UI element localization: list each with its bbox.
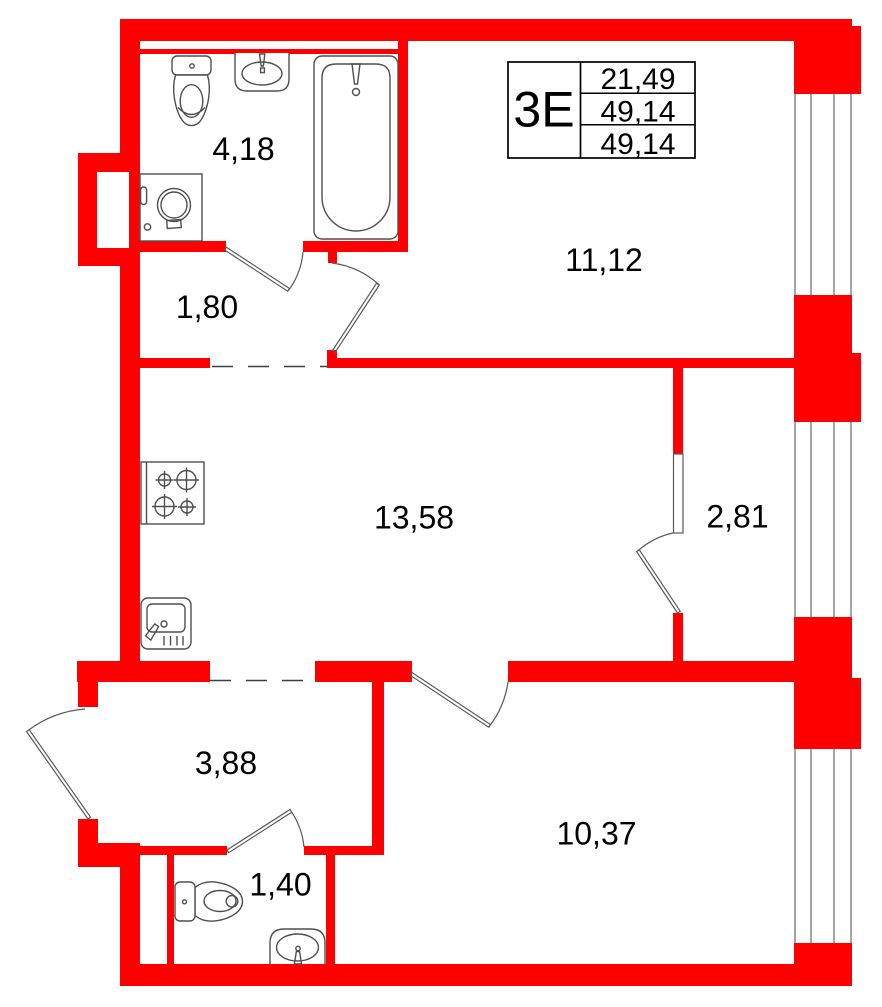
svg-text:2,81: 2,81 [706, 499, 768, 535]
svg-text:13,58: 13,58 [374, 500, 454, 536]
svg-text:4,18: 4,18 [212, 131, 274, 167]
svg-text:1,80: 1,80 [176, 289, 238, 325]
svg-text:10,37: 10,37 [556, 815, 636, 851]
svg-text:49,14: 49,14 [600, 128, 675, 161]
svg-text:3,88: 3,88 [195, 745, 257, 781]
svg-text:3Е: 3Е [513, 81, 574, 137]
svg-text:1,40: 1,40 [249, 866, 311, 902]
svg-text:11,12: 11,12 [565, 242, 643, 278]
svg-text:21,49: 21,49 [600, 63, 675, 96]
svg-text:49,14: 49,14 [600, 96, 675, 129]
